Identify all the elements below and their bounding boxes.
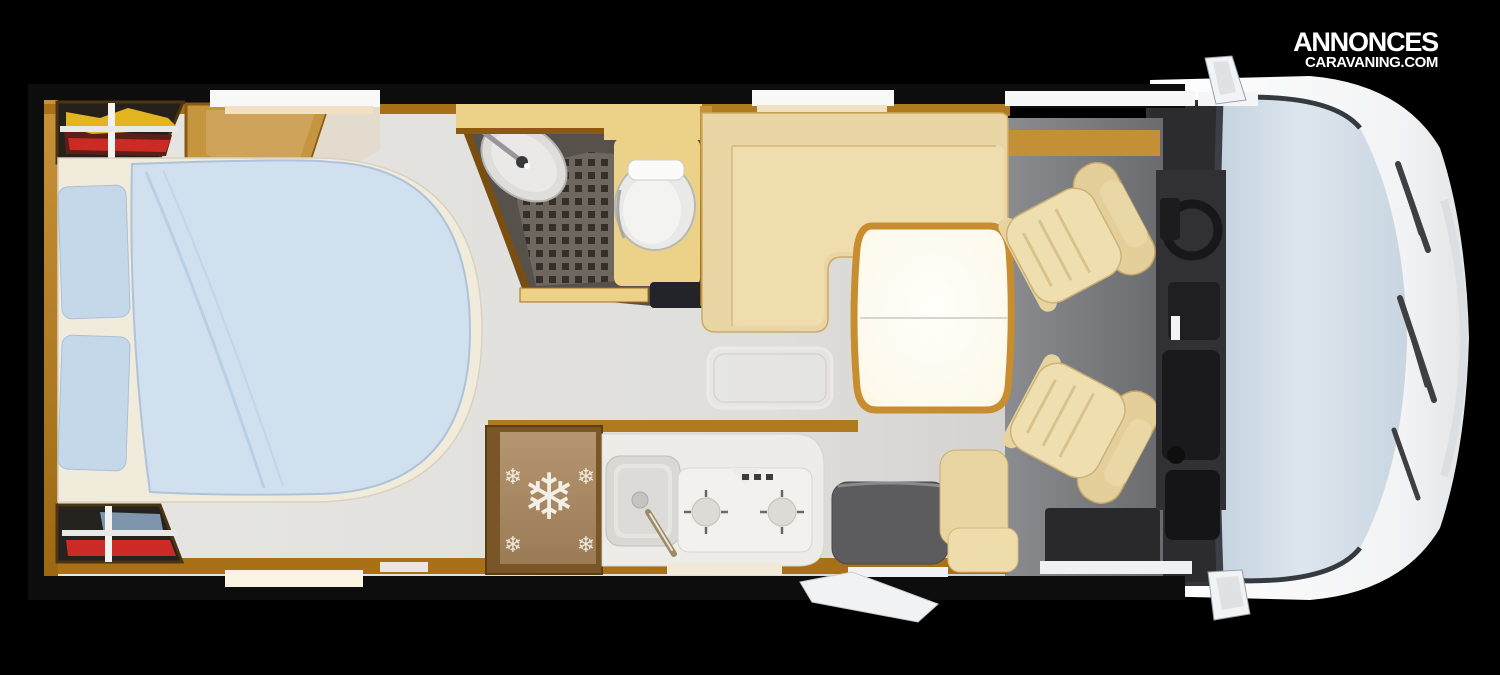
side-seat (940, 450, 1018, 572)
dashboard (1156, 170, 1226, 540)
motorhome-floorplan: ❄ ❄ ❄ ❄ ❄ (0, 0, 1500, 675)
island-bed (58, 158, 482, 502)
snowflake-icon: ❄ (577, 533, 595, 558)
toilet (615, 160, 695, 250)
bed-duvet (131, 160, 470, 494)
fridge: ❄ ❄ ❄ ❄ ❄ (486, 426, 602, 574)
dash-screen (1171, 316, 1180, 340)
entry-door-sill (848, 567, 948, 577)
entry-step-well (832, 482, 948, 564)
cooktop (678, 468, 812, 552)
stored-gear-red-2 (66, 540, 176, 556)
brand-line2: CARAVANING.COM (1293, 56, 1438, 70)
brand-logo: ANNONCES CARAVANING.COM (1293, 30, 1438, 70)
pillow (58, 185, 131, 319)
window-top-2 (752, 90, 894, 106)
stored-gear-red (68, 138, 170, 152)
kitchen: ❄ ❄ ❄ ❄ ❄ (486, 420, 858, 574)
rear-storage-bottom (57, 505, 182, 562)
window-top-3 (1005, 91, 1195, 106)
floor-hatch (708, 348, 832, 408)
side-mirror-bottom (1208, 570, 1250, 620)
kitchen-sink (606, 456, 680, 554)
wall-rear (28, 84, 44, 600)
snowflake-icon: ❄ (504, 465, 522, 490)
bathroom-threshold (520, 288, 648, 302)
cab-step-panel (1045, 508, 1160, 566)
cab-door-sill (1040, 561, 1192, 574)
window-top-1 (210, 90, 380, 107)
snowflake-icon: ❄ (522, 461, 576, 535)
snowflake-icon: ❄ (504, 533, 522, 558)
brand-line1: ANNONCES (1293, 30, 1438, 56)
pillow (58, 335, 131, 471)
window-bottom-3 (667, 563, 782, 575)
snowflake-icon: ❄ (577, 465, 595, 490)
dinette-table (854, 226, 1011, 410)
bathroom-counter (456, 104, 606, 130)
sink-drain (632, 492, 648, 508)
window-bottom-2 (380, 562, 428, 572)
storage-cross-marker (108, 103, 115, 162)
wall-bottom (28, 576, 1185, 600)
window-bottom-1 (225, 570, 363, 587)
rear-storage-top (57, 102, 183, 163)
motorhome-floorplan-page: ❄ ❄ ❄ ❄ ❄ (0, 0, 1500, 675)
